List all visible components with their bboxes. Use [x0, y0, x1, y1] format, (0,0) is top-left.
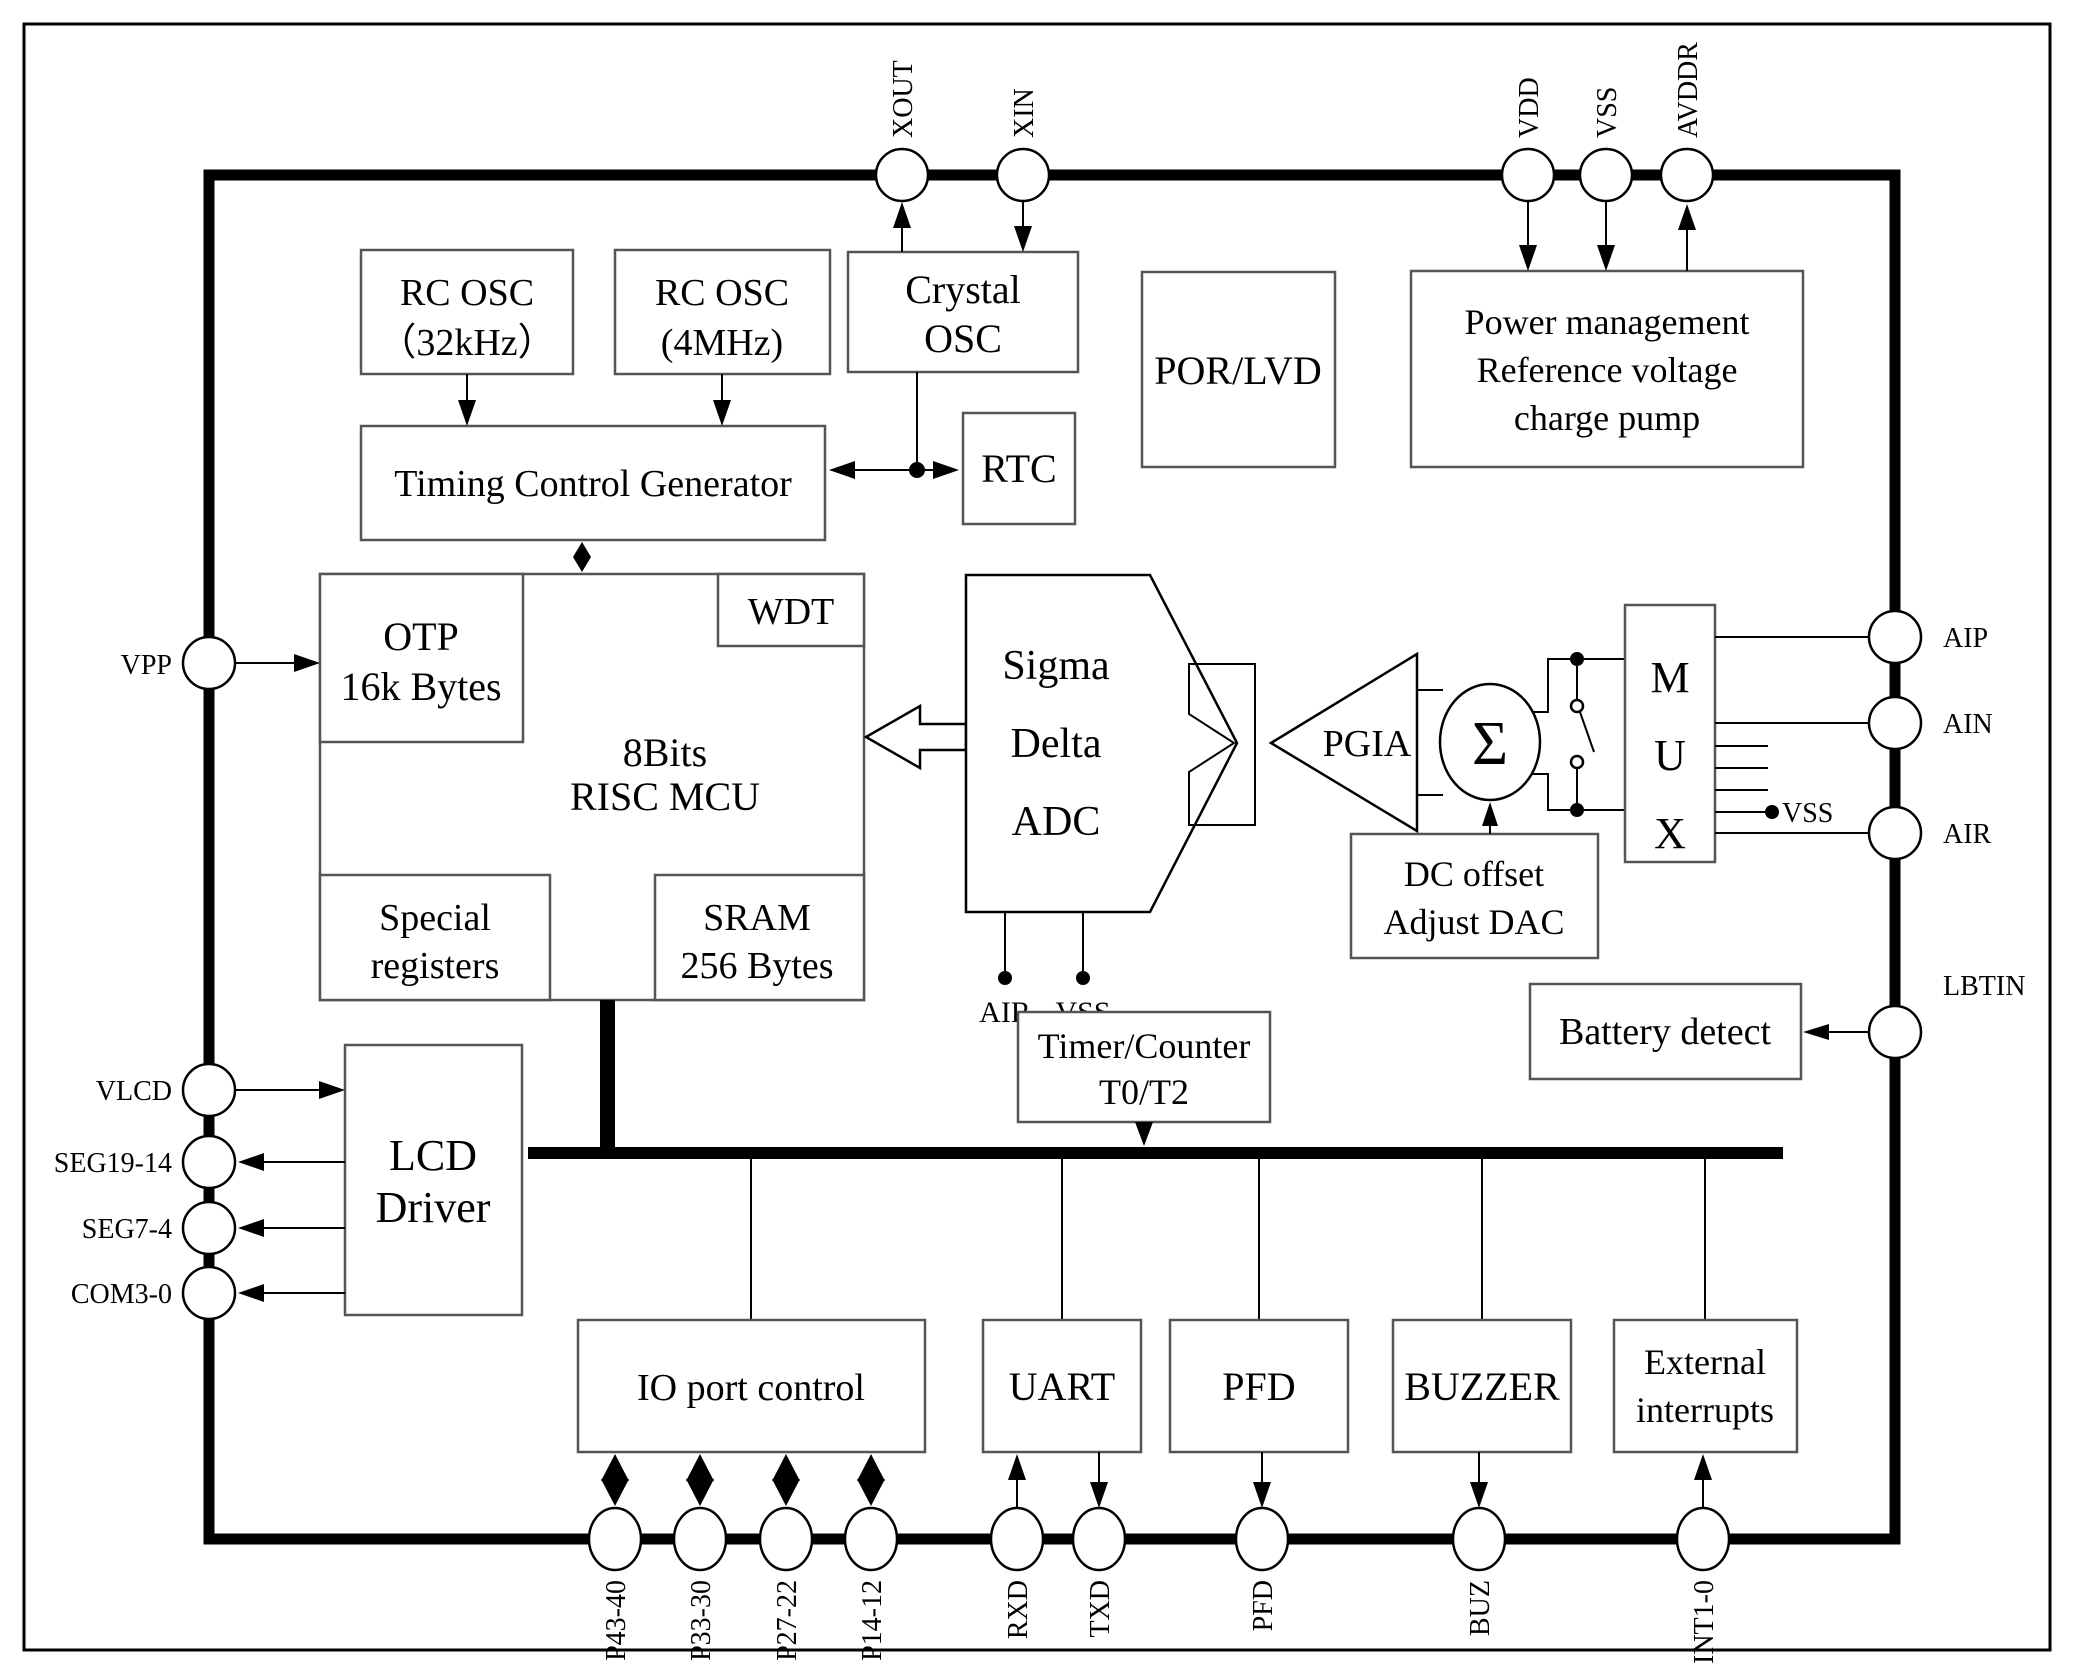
block-lcd-driver	[345, 1045, 522, 1315]
rc-osc-32k-label-line1: RC OSC	[400, 272, 534, 314]
pin-label-aip: AIP	[1943, 623, 1988, 654]
timer-label-line1: Timer/Counter	[1038, 1026, 1251, 1066]
pin-p33-30	[674, 1508, 726, 1570]
adc-vss-dot	[1076, 971, 1090, 985]
lcd-label-line2: Driver	[376, 1183, 491, 1232]
pin-air	[1869, 807, 1921, 859]
mcu-bus-stub	[600, 1000, 615, 1152]
junction-dot-crystal	[909, 462, 925, 478]
pin-vpp	[183, 637, 235, 689]
pin-seg19-14	[183, 1136, 235, 1188]
system-bus	[528, 1147, 1783, 1159]
pin-avddr	[1661, 149, 1713, 201]
pin-label-ain: AIN	[1943, 709, 1993, 740]
switch-node-bottom-dot	[1570, 803, 1584, 817]
sram-label-line2: 256 Bytes	[680, 945, 833, 987]
pin-buz	[1453, 1508, 1505, 1570]
adc-label-line3: ADC	[1012, 799, 1101, 845]
pin-label-seg7-4: SEG7-4	[82, 1214, 172, 1245]
pin-label-xout: XOUT	[888, 60, 919, 138]
block-external-interrupts	[1614, 1320, 1797, 1452]
battery-detect-label: Battery detect	[1559, 1011, 1772, 1053]
pin-label-com3-0: COM3-0	[71, 1279, 172, 1310]
mux-label-line3: X	[1654, 809, 1686, 858]
lcd-label-line1: LCD	[389, 1131, 477, 1180]
rc-osc-4m-label-line1: RC OSC	[655, 272, 789, 314]
pin-label-txd: TXD	[1085, 1580, 1116, 1638]
sram-label-line1: SRAM	[703, 897, 811, 939]
pin-label-p27-22: P27-22	[772, 1580, 803, 1661]
pin-txd	[1073, 1508, 1125, 1570]
pin-rxd	[991, 1508, 1043, 1570]
pin-label-p33-30: P33-30	[686, 1580, 717, 1661]
pin-label-avddr: AVDDR	[1673, 42, 1704, 138]
mcu-label-line1: 8Bits	[623, 730, 707, 775]
crystal-osc-label-line2: OSC	[924, 316, 1002, 361]
figure-canvas: RC OSC （32kHz） RC OSC (4MHz) Crystal OSC…	[0, 0, 2074, 1674]
switch-contact-bottom-icon	[1571, 756, 1583, 768]
special-registers-label-line2: registers	[371, 945, 500, 987]
pgia-label: PGIA	[1323, 723, 1412, 765]
pin-label-vdd: VDD	[1514, 77, 1545, 138]
rc-osc-32k-label-line2: （32kHz）	[378, 322, 555, 364]
pin-label-seg19-14: SEG19-14	[54, 1148, 172, 1179]
ext-int-label-line1: External	[1644, 1342, 1766, 1382]
switch-contact-top-icon	[1571, 700, 1583, 712]
pin-int1-0	[1677, 1508, 1729, 1570]
pin-label-int1-0: INT1-0	[1689, 1580, 1720, 1664]
power-mgmt-label-line1: Power management	[1465, 302, 1750, 342]
pin-label-buz: BUZ	[1465, 1580, 1496, 1636]
pin-com3-0	[183, 1267, 235, 1319]
power-mgmt-label-line3: charge pump	[1514, 398, 1700, 438]
ext-int-label-line2: interrupts	[1636, 1390, 1774, 1430]
otp-label-line2: 16k Bytes	[340, 664, 501, 709]
sigma-symbol: Σ	[1472, 710, 1508, 778]
rtc-label: RTC	[981, 446, 1056, 491]
pin-xout	[876, 149, 928, 201]
pin-label-xin: XIN	[1009, 88, 1040, 138]
mux-label-line2: U	[1654, 731, 1686, 780]
pin-label-lbtin: LBTIN	[1943, 971, 2025, 1002]
special-registers-label-line1: Special	[379, 897, 491, 939]
pin-p27-22	[760, 1508, 812, 1570]
pin-vss	[1580, 149, 1632, 201]
rc-osc-4m-label-line2: (4MHz)	[661, 322, 783, 364]
pin-label-pfd: PFD	[1248, 1580, 1279, 1631]
io-port-label: IO port control	[637, 1367, 865, 1409]
adc-label-line1: Sigma	[1002, 643, 1110, 689]
pin-label-rxd: RXD	[1003, 1580, 1034, 1639]
pin-p43-40	[589, 1508, 641, 1570]
mux-vss-label: VSS	[1782, 798, 1833, 829]
pin-label-air: AIR	[1943, 819, 1992, 850]
pin-label-p14-12: P14-12	[857, 1580, 888, 1661]
pin-label-vlcd: VLCD	[96, 1076, 172, 1107]
buzzer-label: BUZZER	[1404, 1364, 1560, 1409]
power-mgmt-label-line2: Reference voltage	[1477, 350, 1738, 390]
pin-aip	[1869, 611, 1921, 663]
adc-label-line2: Delta	[1011, 721, 1102, 767]
pin-label-vss: VSS	[1592, 87, 1623, 138]
pin-p14-12	[845, 1508, 897, 1570]
pin-vlcd	[183, 1064, 235, 1116]
pin-xin	[997, 149, 1049, 201]
por-lvd-label: POR/LVD	[1154, 348, 1321, 393]
adc-air-dot	[998, 971, 1012, 985]
pin-label-vpp: VPP	[121, 650, 172, 681]
dc-offset-label-line1: DC offset	[1404, 854, 1544, 894]
pin-vdd	[1502, 149, 1554, 201]
timing-control-label: Timing Control Generator	[394, 463, 792, 505]
crystal-osc-label-line1: Crystal	[905, 267, 1021, 312]
pin-seg7-4	[183, 1202, 235, 1254]
switch-node-top-dot	[1570, 652, 1584, 666]
otp-label-line1: OTP	[383, 614, 459, 659]
wdt-label: WDT	[748, 591, 835, 633]
pin-ain	[1869, 697, 1921, 749]
mcu-label-line2: RISC MCU	[570, 774, 760, 819]
pin-label-p43-40: P43-40	[601, 1580, 632, 1661]
uart-label: UART	[1009, 1364, 1115, 1409]
timer-label-line2: T0/T2	[1099, 1072, 1189, 1112]
mux-label-line1: M	[1650, 653, 1689, 702]
dc-offset-label-line2: Adjust DAC	[1383, 902, 1564, 942]
mux-vss-dot	[1765, 805, 1779, 819]
pin-pfd	[1236, 1508, 1288, 1570]
pfd-block-label: PFD	[1222, 1364, 1295, 1409]
pin-lbtin	[1869, 1006, 1921, 1058]
